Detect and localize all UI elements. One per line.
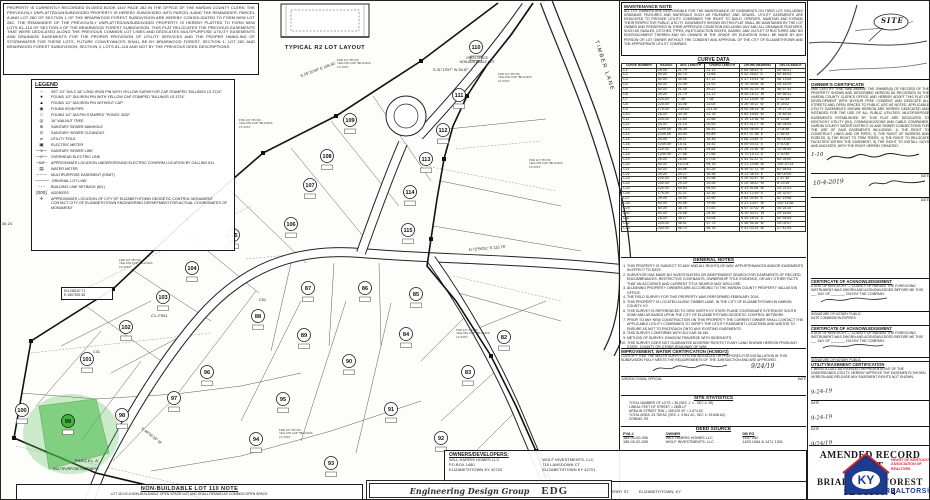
legend-label: FOUND 1/2″ DIA PIN STAMPED "PONCE 3032"	[51, 113, 130, 118]
lot-marker-101: 101	[81, 353, 94, 373]
svg-text:88: 88	[255, 314, 261, 320]
lot-marker-86: 86	[359, 282, 372, 302]
utility-date-label: DATE	[811, 401, 929, 405]
general-note: THIS SURVEY CONFORMS WITH 201 KAR 18:150…	[627, 331, 806, 335]
legend-symbol: –ue–	[35, 161, 48, 166]
bearing-label: S 31°13'57" W 30.87'	[433, 68, 469, 72]
site-statistics-lines: TOTAL NUMBER OF LOTS = 36 (SEC 1: 1 , SE…	[621, 401, 806, 421]
svg-text:86: 86	[362, 286, 368, 292]
legend-symbol: ⌀	[35, 137, 48, 142]
lot-marker-82: 82	[498, 331, 511, 351]
svg-text:83: 83	[465, 370, 471, 376]
utility-signature-row: 9-24-19DATE	[811, 406, 929, 431]
legend-symbol: ▣	[35, 143, 48, 148]
legend-label: 16″ WALNUT TREE	[51, 119, 84, 124]
bearing-label: S 25°10'30" E 155.40'	[300, 61, 336, 77]
lot-marker-83: 83	[462, 366, 475, 386]
site-statistics-section: SITE STATISTICS TOTAL NUMBER OF LOTS = 3…	[621, 395, 806, 426]
svg-text:97: 97	[171, 396, 177, 402]
utility-date-value: 9-24-19	[811, 414, 833, 422]
svg-text:100: 100	[17, 408, 26, 414]
owner-signature-line-2	[811, 190, 929, 198]
lot-marker-114: 114	[404, 186, 417, 206]
realtors-label: REALTORS®	[885, 488, 930, 495]
legend-symbol: [000]	[35, 191, 48, 196]
curve-ref-label: C1–F901	[151, 314, 168, 319]
lot-marker-87: 87	[302, 282, 315, 302]
svg-text:93: 93	[328, 461, 334, 467]
edg-stamp-initials: EDG	[541, 485, 568, 497]
lot-marker-113: 113	[420, 153, 433, 173]
site-stat-line: ZONING: R2	[629, 417, 806, 421]
signature	[821, 343, 885, 350]
pin-note: FND 1/2″ PIN W/ YELLOW CAP "BILLINGS LS …	[119, 259, 153, 269]
legend-symbol: ●	[35, 95, 48, 100]
owner-date-2: 10-4-2019	[813, 178, 844, 187]
general-note: PRIOR TO ANY NEW CONSTRUCTION ON THIS PR…	[627, 318, 806, 331]
plat-sheet: 8283848586878889909192939495969798991001…	[0, 0, 930, 500]
curve-data-table: CURVE NUMBERRADIUSARC LENGTHCHORD LENGTH…	[621, 63, 806, 232]
lot-marker-103: 103	[157, 291, 170, 311]
lot-marker-94: 94	[250, 433, 263, 453]
edg-stamp: Engineering Design Group EDG	[366, 480, 612, 500]
notary-signature-line	[811, 304, 929, 312]
legend-item: ⊙SANITARY SEWER CLEANOUT	[35, 131, 231, 136]
engineer-city: ELIZABETHTOWN, KY	[639, 490, 681, 495]
maintenance-note-text: ALL LOT OWNERS ARE RESPONSIBLE FOR THE M…	[624, 9, 803, 46]
svg-text:94: 94	[253, 437, 260, 443]
legend-label: ORIGINAL LOT LINE	[52, 179, 87, 184]
legend-label: SANITARY SEWER CLEANOUT	[51, 131, 105, 136]
improvement-date-label: DATE	[798, 377, 806, 381]
lot-marker-100: 100	[16, 404, 29, 424]
pin-note: FND 1/2″ PIN W/ YELLOW CAP "BILLINGS LS …	[337, 59, 371, 69]
deed-note-box: PROPERTY IS CURRENTLY RECORDED IN DEED B…	[3, 3, 259, 75]
legend-item: ✛APPROXIMATE LOCATION OF CITY OF ELIZABE…	[35, 197, 231, 209]
legend-symbol: ▤	[35, 167, 48, 172]
lot-marker-97: 97	[168, 392, 181, 412]
owners-developers-box: OWNERS/DEVELOPERS: WILL HARRIS HOMES LLC…	[444, 450, 807, 482]
bearing-label: C51	[259, 298, 266, 302]
deed-source-table: PVA #OWNERDB PG185-00-00-036WILL HARRIS …	[621, 432, 806, 444]
ack-certificate-body: STATE OF KENTUCKY — COUNTY OF HARDIN. TH…	[811, 284, 929, 296]
lot-marker-112: 112	[437, 124, 450, 144]
signature	[825, 150, 921, 164]
svg-text:109: 109	[345, 118, 354, 124]
legend-symbol: ○	[35, 90, 48, 95]
ky-realtors-logo: KY HEART OF KENTUCKY ASSOCIATION OF REAL…	[841, 450, 930, 500]
svg-text:84: 84	[403, 332, 410, 338]
pin-note: FND 1/2″ PIN W/ YELLOW CAP "BILLINGS LS …	[529, 159, 563, 169]
legend-label: ADDRESS	[51, 191, 69, 196]
general-note: METHOD OF SURVEY: RANDOM TRAVERSE WITH S…	[627, 336, 806, 340]
lot-marker-89: 89	[298, 329, 311, 349]
lot-marker-107: 107	[304, 179, 317, 199]
site-label: SITE	[881, 16, 904, 25]
svg-text:104: 104	[187, 266, 197, 272]
lot-marker-92: 92	[435, 432, 448, 452]
lot-marker-96: 96	[201, 366, 214, 386]
legend-item: —s—SANITARY SEWER LINE	[35, 149, 231, 154]
svg-text:102: 102	[121, 325, 130, 331]
legend-label: SANITARY SEWER LINE	[51, 149, 93, 154]
legend-title: LEGEND	[35, 82, 231, 88]
legend-label: FOUND 1/2″ DIA IRON PIN WITH YELLOW CAP …	[51, 95, 185, 100]
typical-lot-layout: TYPICAL R2 LOT LAYOUT	[275, 2, 375, 51]
legend-item: ▣ELECTRIC METER	[35, 143, 231, 148]
non-buildable-text: LOT 110 IS A NON-BUILDABLE OPEN SPACE LO…	[21, 492, 358, 496]
legend-symbol: ⊙	[35, 131, 48, 136]
jurisdictional-official-label: JURISDICTIONAL OFFICIAL	[621, 377, 662, 381]
svg-text:111: 111	[455, 93, 464, 99]
improvement-cert-section: IMPROVEMENT, WATER CERTIFICATION (HCWD#2…	[621, 348, 806, 395]
utility-date-value: 9-24-19	[811, 388, 833, 396]
lot-marker-111: 111	[453, 89, 466, 109]
improvement-date-value: 9/24/19	[751, 363, 774, 370]
owner-signature-line-1	[811, 166, 929, 174]
svg-text:110: 110	[471, 45, 480, 51]
legend-symbol: □	[35, 113, 48, 118]
signature	[651, 362, 731, 374]
lot-marker-95: 95	[277, 393, 290, 413]
lot-marker-91: 91	[385, 403, 398, 423]
legend-label: SET 1/2″ DIA X 18″ LONG IRON PIN WITH YE…	[51, 90, 222, 95]
lot-marker-93: 93	[325, 457, 338, 477]
legend-item: ▤WATER METER	[35, 167, 231, 172]
svg-text:106: 106	[286, 222, 295, 228]
owner-certificate-text: I/WE CERTIFY THAT I/WE AM/ARE THE OWNER(…	[811, 87, 929, 148]
svg-text:KY: KY	[858, 473, 875, 487]
legend-symbol: —e—	[35, 155, 48, 160]
non-buildable-note-box: NON-BUILDABLE LOT 110 NOTE LOT 110 IS A …	[16, 484, 363, 500]
maintenance-note: MAINTENANCE NOTE ALL LOT OWNERS ARE RESP…	[621, 2, 806, 56]
utility-easement-section: UTILITY/EASEMENT CERTIFICATION I, BEING …	[811, 361, 929, 446]
legend-item: - - -BUILDING LINE SETBACK (B/L)	[35, 185, 231, 190]
general-note: THIS PROPERTY IS LOCATED ALONG TIMBER LA…	[627, 300, 806, 309]
svg-text:92: 92	[438, 436, 444, 442]
owner-date-1: 1-10	[811, 152, 823, 158]
pin-note: FND 1/2″ PIN W/ YELLOW CAP "BILLINGS LS …	[279, 429, 313, 439]
legend-symbol: ✛	[35, 197, 48, 209]
svg-text:113: 113	[421, 157, 430, 163]
commission-expires-label: DATE COMMISSION EXPIRES	[811, 316, 929, 320]
legend-label: SANITARY SEWER MANHOLE	[51, 125, 103, 130]
legend-item: ◎16″ WALNUT TREE	[35, 119, 231, 124]
legend-symbol: – – –	[35, 173, 48, 178]
edg-stamp-name: Engineering Design Group	[410, 486, 530, 496]
general-note: THE FIELD SURVEY FOR THIS PROPERTY WAS P…	[627, 295, 806, 299]
general-note: THIS PROPERTY IS SUBJECT TO ANY AND ALL …	[627, 264, 806, 273]
legend-item: [000]ADDRESS	[35, 191, 231, 196]
general-notes-list: THIS PROPERTY IS SUBJECT TO ANY AND ALL …	[621, 264, 806, 359]
road-name-label: TIMBER LANE	[593, 40, 615, 92]
lot-marker-88: 88	[252, 310, 265, 330]
vicinity-map: SITE	[809, 1, 930, 80]
legend-label: FOUND IRON PIPE	[51, 107, 84, 112]
svg-text:108: 108	[322, 154, 331, 160]
legend-label: BUILDING LINE SETBACK (B/L)	[51, 185, 105, 190]
svg-text:99: 99	[65, 419, 71, 425]
svg-text:114: 114	[405, 190, 415, 196]
deed-source-row: 185-00-02-039WOLF INVESTMENTS, LLC1453 1…	[621, 440, 806, 444]
legend-label: MULTIPURPOSE EASEMENT (ESMT)	[51, 173, 115, 178]
svg-text:87: 87	[305, 286, 311, 292]
ack-certificate-1: CERTIFICATE OF ACKNOWLEDGEMENT STATE OF …	[811, 278, 929, 320]
legend-box: LEGEND ○SET 1/2″ DIA X 18″ LONG IRON PIN…	[31, 79, 235, 251]
legend-symbol: ▲	[35, 101, 48, 106]
svg-text:89: 89	[301, 333, 307, 339]
legend-item: ⊜SANITARY SEWER MANHOLE	[35, 125, 231, 130]
general-note: THIS SURVEY IS REFERENCED TO GRID NORTH …	[627, 309, 806, 318]
legend-item: —e—OVERHEAD ELECTRIC LINE	[35, 155, 231, 160]
lot-marker-99: 99	[62, 415, 75, 435]
notary-signature-line	[811, 350, 929, 358]
svg-text:95: 95	[280, 397, 286, 403]
owner-certificate-section: OWNER'S CERTIFICATE I/WE CERTIFY THAT I/…	[811, 82, 929, 202]
legend-item: ▲FOUND 1/2″ DIA IRON PIN WITHOUT CAP	[35, 101, 231, 106]
legend-item: – – –MULTIPURPOSE EASEMENT (ESMT)	[35, 173, 231, 178]
pin-note: FND 1/2″ PIN W/ YELLOW CAP "BILLINGS LS …	[498, 73, 532, 83]
utility-date-label: DATE	[811, 427, 929, 431]
legend-item: ⌀UTILITY POLE	[35, 137, 231, 142]
legend-label: OVERHEAD ELECTRIC LINE	[51, 155, 100, 160]
divider-col-a	[619, 1, 620, 500]
svg-text:91: 91	[388, 407, 394, 413]
lot-marker-106: 106	[285, 218, 298, 238]
general-notes-section: GENERAL NOTES THIS PROPERTY IS SUBJECT T…	[621, 257, 806, 359]
legend-label: APPROXIMATE LOCATION OF CITY OF ELIZABET…	[51, 197, 231, 209]
svg-text:98: 98	[119, 413, 125, 419]
lot-marker-84: 84	[400, 328, 413, 348]
deed-source-section: DEED SOURCE PVA #OWNERDB PG185-00-00-036…	[621, 426, 806, 451]
typical-lot-caption: TYPICAL R2 LOT LAYOUT	[275, 45, 375, 51]
svg-text:96: 96	[204, 370, 210, 376]
legend-item: ●FOUND 1/2″ DIA IRON PIN WITH YELLOW CAP…	[35, 95, 231, 100]
legend-symbol: ◎	[35, 119, 48, 124]
coord-e: E:1507592.36	[64, 293, 110, 297]
bearing-label: C31	[93, 350, 100, 354]
svg-text:103: 103	[158, 295, 167, 301]
owner-address-1: WILL HARRIS HOMES LLCPO BOX 1480ELIZABET…	[449, 458, 502, 473]
lot-marker-85: 85	[410, 288, 423, 308]
utility-signature-row: 9-24-19DATE	[811, 380, 929, 405]
open-space-label: OPEN SPACE NON-BUILDABLE LOT	[451, 56, 503, 64]
svg-text:107: 107	[305, 183, 314, 189]
owner-date-label-2: DATE	[811, 198, 929, 202]
signature	[867, 178, 927, 189]
legend-symbol: ◉	[35, 107, 48, 112]
parcel-a-label: PARCEL A	[75, 459, 98, 464]
legend-symbol: - - -	[35, 185, 48, 190]
svg-text:112: 112	[438, 128, 447, 134]
improvement-cert-text: I CERTIFY THAT THE WATER SUPPLY SYSTEM I…	[621, 354, 806, 362]
ack-certificate-2: CERTIFICATE OF ACKNOWLEDGEMENT STATE OF …	[811, 325, 929, 362]
ky-tagline-3: REALTORS	[891, 467, 930, 471]
legend-item: –ue–APPROXIMATE LOCATION UNDERGROUND ELE…	[35, 161, 231, 166]
legend-label: FOUND 1/2″ DIA IRON PIN WITHOUT CAP	[51, 101, 123, 106]
svg-text:82: 82	[501, 335, 507, 341]
pin-note: FND 1/2″ PIN W/ YELLOW CAP "BILLINGS LS …	[239, 119, 273, 129]
bearing-label: N 72°56'51" E 115.78'	[469, 245, 506, 252]
legend-label: WATER METER	[51, 167, 78, 172]
legend-items: ○SET 1/2″ DIA X 18″ LONG IRON PIN WITH Y…	[35, 90, 231, 210]
deed-note-text: PROPERTY IS CURRENTLY RECORDED IN DEED B…	[7, 6, 255, 50]
legend-item: ———ORIGINAL LOT LINE	[35, 179, 231, 184]
coordinate-box: N:2138167.71 E:1507592.36	[61, 287, 113, 300]
divider-col-b	[807, 1, 808, 500]
svg-text:90: 90	[346, 359, 352, 365]
lot-marker-115: 115	[402, 224, 415, 244]
signature	[819, 296, 889, 304]
legend-item: ○SET 1/2″ DIA X 18″ LONG IRON PIN WITH Y…	[35, 90, 231, 95]
curve-row: C33200.00'96.70'95.76'S 41°02'33" W27°42…	[622, 227, 806, 232]
general-note: SURVEYOR HAS MADE NO INVESTIGATION OR IN…	[627, 273, 806, 286]
lot-marker-108: 108	[321, 150, 334, 170]
lot-marker-90: 90	[343, 355, 356, 375]
utility-cert-text: I, BEING A DULY AUTHORIZED REPRESENTATIV…	[811, 367, 929, 379]
lot-marker-104: 104	[186, 262, 199, 282]
legend-label: APPROXIMATE LOCATION UNDERGROUND ELECTRI…	[51, 161, 214, 166]
lot-marker-109: 109	[344, 114, 357, 134]
multipurpose-easement-label: MULTIPURPOSE EASEMENT	[53, 467, 99, 471]
legend-label: ELECTRIC METER	[51, 143, 83, 148]
lot-marker-98: 98	[116, 409, 129, 429]
bearing-label: S 48°06'18" W	[140, 427, 162, 445]
general-note: ADJOINING PROPERTY OWNERS ARE ACCORDING …	[627, 286, 806, 295]
pin-note: FND 1/2″ PIN W/ YELLOW CAP "BILLINGS LS …	[456, 329, 490, 339]
legend-label: UTILITY POLE	[51, 137, 76, 142]
edge-dimension: 35.24	[2, 222, 12, 227]
legend-symbol: —s—	[35, 149, 48, 154]
curve-data-section: CURVE DATA CURVE NUMBERRADIUSARC LENGTHC…	[621, 57, 806, 232]
svg-text:101: 101	[82, 357, 91, 363]
svg-text:85: 85	[413, 292, 419, 298]
typical-lot-diagram	[275, 2, 375, 40]
legend-symbol: ⊜	[35, 125, 48, 130]
legend-symbol: ———	[35, 179, 49, 184]
svg-text:115: 115	[403, 228, 412, 234]
legend-item: □FOUND 1/2″ DIA PIN STAMPED "PONCE 3032"	[35, 113, 231, 118]
legend-item: ◉FOUND IRON PIPE	[35, 107, 231, 112]
lot-marker-102: 102	[120, 321, 133, 341]
general-notes-title: GENERAL NOTES	[621, 258, 806, 263]
owner-address-2: WOLF INVESTMENTS, LLC710 LANSDOWN CTELIZ…	[542, 458, 595, 473]
